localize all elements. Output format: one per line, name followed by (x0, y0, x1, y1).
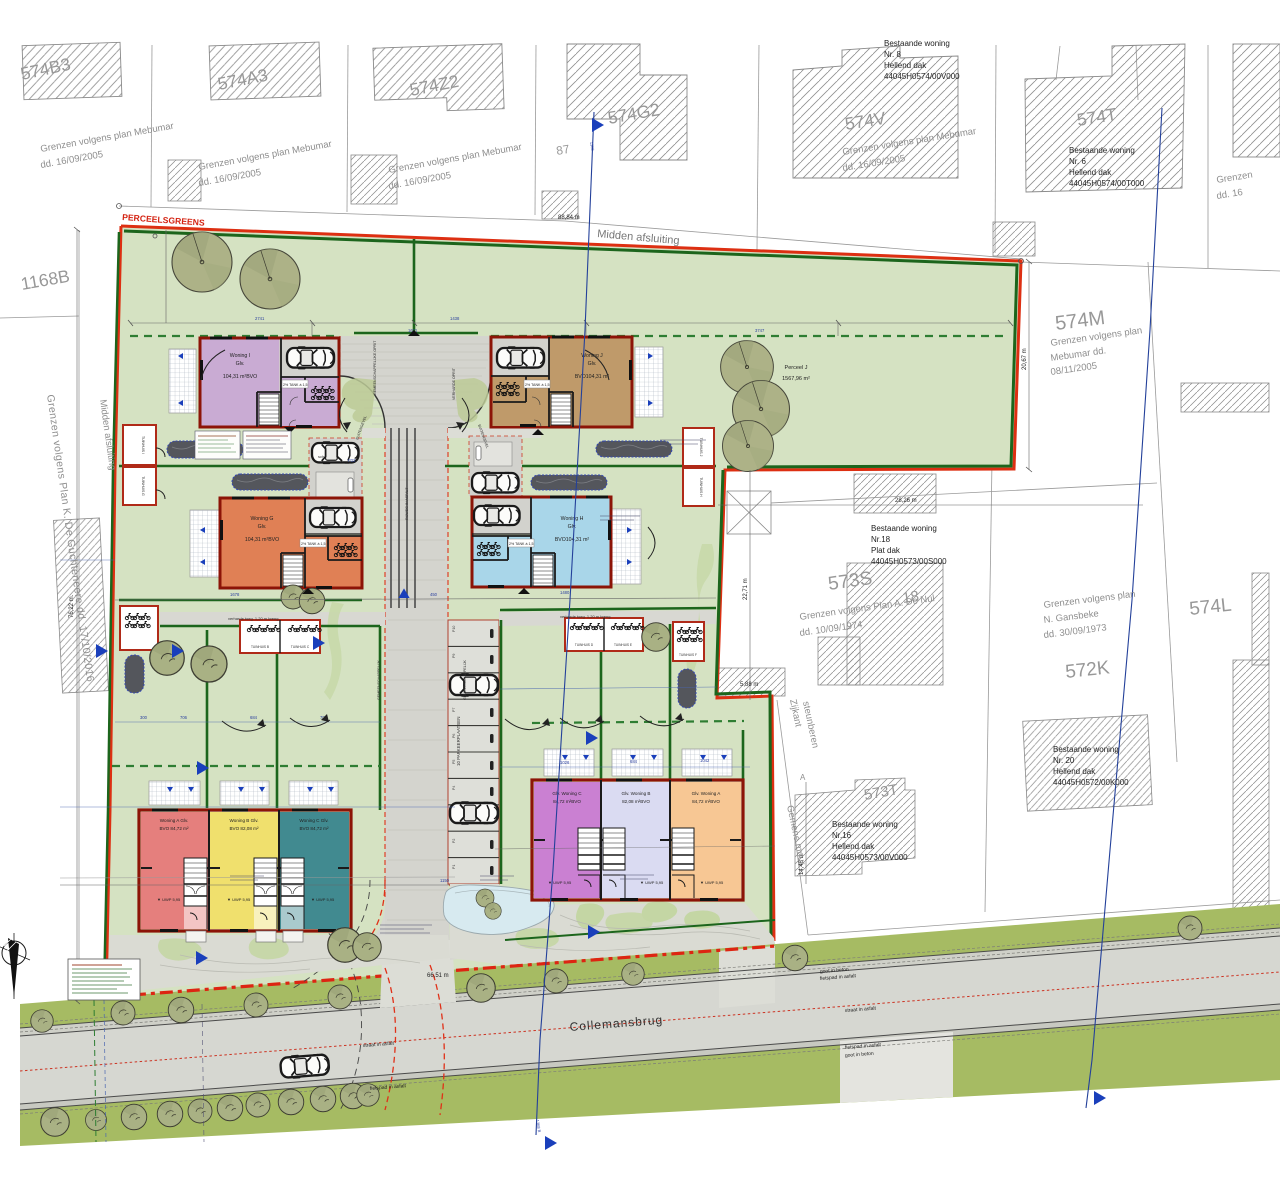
svg-text:TUINHUIS I: TUINHUIS I (141, 436, 145, 454)
svg-text:Bestaande woning: Bestaande woning (1053, 745, 1119, 754)
svg-text:P6: P6 (452, 734, 456, 738)
svg-text:1026: 1026 (560, 760, 570, 765)
svg-text:1438: 1438 (450, 316, 460, 321)
svg-text:88,84 m: 88,84 m (558, 215, 580, 221)
svg-text:44045H0572/00K000: 44045H0572/00K000 (1053, 778, 1129, 787)
svg-text:▼ UWP 5,95: ▼ UWP 5,95 (700, 880, 724, 885)
svg-text:1678: 1678 (230, 592, 240, 597)
svg-text:104,31 m²BVO: 104,31 m²BVO (223, 374, 257, 380)
svg-text:GEMEENSCHAPPELIJK: GEMEENSCHAPPELIJK (377, 659, 381, 700)
svg-text:TUINHUIS E: TUINHUIS E (614, 643, 632, 647)
svg-text:66,51 m: 66,51 m (427, 973, 449, 979)
svg-text:Hellend dak: Hellend dak (884, 61, 927, 70)
svg-text:BVO 82,08 m²: BVO 82,08 m² (229, 826, 259, 831)
svg-text:▼ UWP 5,95: ▼ UWP 5,95 (640, 880, 664, 885)
svg-text:TUINHUIS H: TUINHUIS H (699, 477, 703, 497)
svg-text:RIJWEG IN ASFALT: RIJWEG IN ASFALT (405, 487, 409, 520)
svg-text:▼ UWP 5,95: ▼ UWP 5,95 (227, 897, 251, 902)
svg-text:1150: 1150 (440, 878, 450, 883)
svg-text:2% TANK à 1,5: 2% TANK à 1,5 (283, 383, 307, 387)
svg-text:44045H0574/00V000: 44045H0574/00V000 (884, 72, 960, 81)
svg-text:GEMEENSCHAPPELIJKE OPRIT: GEMEENSCHAPPELIJKE OPRIT (373, 340, 377, 395)
svg-text:verharde toeg. 1,20 m breng: verharde toeg. 1,20 m breng (560, 614, 610, 619)
svg-text:Woning I: Woning I (230, 353, 250, 359)
svg-text:2% TANK à 1,5: 2% TANK à 1,5 (301, 542, 325, 546)
svg-text:A: A (800, 773, 806, 782)
svg-text:22,71 m: 22,71 m (743, 578, 749, 600)
svg-text:20,67 m: 20,67 m (1022, 348, 1028, 370)
svg-text:3747: 3747 (755, 328, 765, 333)
svg-text:P1: P1 (452, 865, 456, 869)
svg-text:Woning C Glv.: Woning C Glv. (299, 818, 328, 823)
svg-text:GEMEENSCHAPPELIJK: GEMEENSCHAPPELIJK (463, 659, 467, 700)
svg-text:verharde toeg. 1,20 m breng: verharde toeg. 1,20 m breng (228, 616, 278, 621)
svg-text:TUINHUIS F: TUINHUIS F (679, 653, 697, 657)
svg-text:▼ UWP 5,95: ▼ UWP 5,95 (157, 897, 181, 902)
svg-text:Bestaande woning: Bestaande woning (1069, 146, 1135, 155)
svg-text:P5: P5 (452, 760, 456, 764)
svg-text:BVO104,31 m²: BVO104,31 m² (555, 537, 590, 543)
svg-text:Bestaande woning: Bestaande woning (832, 820, 898, 829)
svg-text:Glv.: Glv. (588, 361, 597, 367)
svg-text:TUINHUIS B: TUINHUIS B (251, 645, 269, 649)
svg-text:28,26 m: 28,26 m (895, 498, 917, 504)
svg-text:P7: P7 (452, 708, 456, 712)
svg-text:TUINHUIS D: TUINHUIS D (575, 643, 594, 647)
svg-text:5,88 m: 5,88 m (740, 682, 758, 688)
svg-text:BVO 84,72 m²: BVO 84,72 m² (299, 826, 329, 831)
svg-text:450: 450 (430, 592, 438, 597)
svg-text:P10: P10 (452, 626, 456, 632)
svg-text:Hellend dak: Hellend dak (832, 842, 875, 851)
svg-text:Nr.18: Nr.18 (871, 535, 891, 544)
svg-text:P4: P4 (452, 786, 456, 790)
svg-text:574L: 574L (1188, 595, 1232, 620)
svg-text:Nr. 6: Nr. 6 (1069, 157, 1086, 166)
svg-text:Hellend dak: Hellend dak (1069, 168, 1112, 177)
svg-text:Perceel J: Perceel J (785, 365, 808, 371)
svg-text:sch: sch (318, 454, 324, 459)
svg-text:Glv. Woning C: Glv. Woning C (552, 791, 582, 796)
svg-text:Nr. 20: Nr. 20 (1053, 756, 1075, 765)
svg-text:10 PARKEERPLAATSEN: 10 PARKEERPLAATSEN (456, 717, 461, 766)
svg-text:BVO104,31 m²: BVO104,31 m² (575, 374, 610, 380)
svg-text:TUINHUIS J: TUINHUIS J (699, 438, 703, 457)
svg-text:2% TANK à 1,5: 2% TANK à 1,5 (525, 383, 549, 387)
svg-text:BVO 84,72 m²: BVO 84,72 m² (159, 826, 189, 831)
svg-text:Hellend dak: Hellend dak (1053, 767, 1096, 776)
svg-text:Bestaande woning: Bestaande woning (884, 39, 950, 48)
svg-text:VERHARDE OPRIT: VERHARDE OPRIT (452, 367, 456, 400)
svg-text:684: 684 (630, 759, 638, 764)
svg-text:1567,96 m²: 1567,96 m² (782, 376, 810, 382)
svg-text:2% TANK à 1,5: 2% TANK à 1,5 (509, 542, 533, 546)
svg-text:Glv.: Glv. (258, 524, 267, 530)
svg-text:Plat dak: Plat dak (871, 546, 901, 555)
svg-text:Glv.: Glv. (568, 524, 577, 530)
svg-text:Woning H: Woning H (561, 516, 584, 522)
svg-text:Nr. 8: Nr. 8 (884, 50, 901, 59)
svg-text:Woning A Glv.: Woning A Glv. (160, 818, 188, 823)
svg-text:84,72 m²BVO: 84,72 m²BVO (692, 799, 720, 804)
svg-text:44045H0573/00V000: 44045H0573/00V000 (832, 853, 908, 862)
svg-text:706: 706 (180, 715, 188, 720)
svg-text:P2: P2 (452, 839, 456, 843)
svg-text:104,31 m²BVO: 104,31 m²BVO (245, 537, 279, 543)
svg-text:44045H0573/00S000: 44045H0573/00S000 (871, 557, 947, 566)
svg-text:P22: P22 (348, 458, 356, 463)
svg-text:Glv. Woning B: Glv. Woning B (622, 791, 651, 796)
svg-text:Woning B Glv.: Woning B Glv. (230, 818, 259, 823)
svg-text:82,08 m²BVO: 82,08 m²BVO (622, 799, 650, 804)
svg-text:Bestaande woning: Bestaande woning (871, 524, 937, 533)
svg-text:Glv. Woning A: Glv. Woning A (692, 791, 722, 796)
svg-text:684: 684 (250, 715, 258, 720)
svg-text:1042: 1042 (700, 758, 710, 763)
svg-text:Glv.: Glv. (236, 361, 245, 367)
svg-text:P9: P9 (452, 654, 456, 658)
svg-text:TUINHUIS C: TUINHUIS C (291, 645, 310, 649)
svg-text:1480: 1480 (560, 590, 570, 595)
svg-text:▼ UWP 5,95: ▼ UWP 5,95 (311, 897, 335, 902)
svg-text:Nr.16: Nr.16 (832, 831, 852, 840)
svg-text:Woning G: Woning G (251, 516, 274, 522)
svg-text:2741: 2741 (255, 316, 265, 321)
svg-text:87: 87 (555, 142, 571, 158)
svg-text:300: 300 (140, 715, 148, 720)
svg-text:TUINHUIS G: TUINHUIS G (141, 476, 145, 496)
svg-text:44045H0574/00T000: 44045H0574/00T000 (1069, 179, 1145, 188)
